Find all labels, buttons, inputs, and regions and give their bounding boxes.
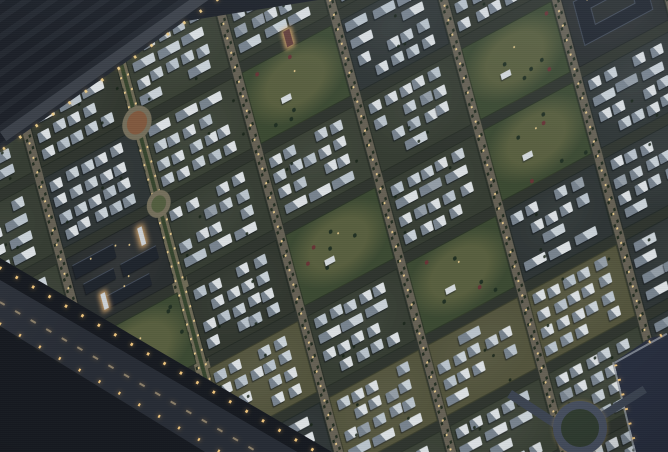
house	[329, 304, 343, 320]
park-tree	[529, 66, 534, 72]
house	[234, 374, 248, 390]
house	[391, 125, 405, 141]
park-pavilion	[522, 150, 533, 161]
house	[94, 152, 108, 168]
house	[83, 102, 97, 118]
house	[547, 283, 561, 299]
park-tree	[442, 298, 447, 304]
block-tree	[8, 176, 11, 180]
house	[211, 293, 225, 309]
house	[9, 230, 33, 250]
house	[231, 6, 245, 22]
house	[629, 165, 643, 181]
house	[357, 51, 371, 67]
house	[528, 442, 542, 452]
house	[544, 340, 558, 356]
house	[175, 103, 199, 123]
block-tree	[33, 404, 36, 408]
house	[569, 363, 583, 379]
block-tree	[394, 195, 397, 199]
park-tree	[522, 75, 527, 81]
house	[598, 107, 612, 123]
house	[324, 159, 338, 175]
house	[103, 184, 117, 200]
house	[3, 294, 17, 310]
house	[455, 423, 469, 439]
house	[171, 19, 185, 35]
house	[293, 176, 307, 192]
house	[175, 387, 189, 403]
house	[650, 43, 664, 59]
house	[133, 1, 147, 17]
aerial-city-render	[0, 0, 668, 452]
house	[53, 414, 67, 430]
house	[640, 436, 654, 452]
house	[373, 0, 397, 19]
house	[154, 138, 168, 154]
house	[357, 421, 371, 437]
house	[223, 400, 237, 416]
house	[160, 395, 174, 411]
house	[661, 351, 668, 367]
house	[69, 184, 83, 200]
house	[406, 43, 420, 59]
house	[268, 448, 282, 452]
house	[234, 22, 248, 38]
house	[204, 204, 218, 220]
house	[563, 274, 577, 290]
house	[620, 429, 634, 445]
house	[314, 313, 328, 329]
house	[70, 129, 84, 145]
house	[251, 13, 265, 29]
block-tree	[251, 279, 254, 283]
house	[544, 210, 558, 226]
house	[603, 67, 617, 83]
house	[236, 261, 250, 277]
house	[216, 180, 230, 196]
house	[454, 0, 468, 14]
house	[560, 331, 574, 347]
house	[605, 363, 619, 379]
park-tree	[516, 135, 521, 141]
house	[532, 289, 546, 305]
house	[548, 241, 572, 261]
block-tree	[483, 348, 486, 352]
block-tree	[66, 220, 69, 224]
park-pavilion	[126, 360, 137, 371]
house	[350, 387, 364, 403]
house	[456, 368, 470, 384]
house	[322, 346, 336, 362]
house	[402, 397, 416, 413]
house	[647, 173, 661, 189]
house	[157, 40, 181, 60]
park-pavilion	[280, 93, 291, 104]
minaret-tower	[137, 226, 146, 246]
house	[610, 155, 624, 171]
house	[116, 417, 130, 433]
house	[56, 80, 70, 96]
house	[542, 223, 566, 243]
park-tree-red	[255, 71, 260, 77]
house	[81, 29, 95, 45]
courtyard-light	[128, 275, 130, 278]
house	[615, 73, 639, 93]
house	[23, 300, 37, 316]
house	[617, 116, 631, 132]
house	[375, 60, 389, 76]
house	[0, 301, 3, 317]
house	[4, 213, 28, 233]
house	[65, 37, 79, 53]
house	[247, 292, 261, 308]
house	[121, 434, 135, 450]
house	[449, 204, 463, 220]
house	[373, 115, 387, 131]
house	[434, 156, 448, 172]
house	[17, 285, 31, 301]
house	[208, 277, 222, 293]
park-tree	[352, 233, 357, 239]
residential-grid-layer	[0, 0, 668, 452]
house	[193, 284, 207, 300]
block-tree	[656, 113, 659, 117]
house	[223, 140, 237, 156]
house	[427, 66, 441, 82]
house	[499, 325, 513, 341]
house	[368, 99, 382, 115]
house	[592, 388, 606, 404]
house	[50, 47, 64, 63]
house	[487, 407, 501, 423]
house	[472, 360, 486, 376]
house	[50, 375, 74, 395]
house	[559, 201, 573, 217]
house	[356, 347, 370, 363]
house	[359, 288, 373, 304]
house	[663, 252, 668, 272]
house	[236, 442, 260, 452]
house	[372, 427, 396, 447]
block-tree	[121, 0, 124, 2]
house	[288, 383, 302, 399]
house	[416, 445, 430, 452]
house	[176, 165, 190, 181]
house	[601, 290, 615, 306]
block-tree	[25, 390, 28, 394]
house	[634, 181, 648, 197]
house	[485, 334, 499, 350]
park-tree-red	[478, 284, 483, 290]
block-tree	[492, 354, 495, 358]
house	[373, 412, 387, 428]
house	[88, 193, 102, 209]
house	[284, 195, 308, 215]
house	[264, 6, 278, 22]
house	[188, 59, 212, 79]
house	[34, 276, 48, 292]
house	[256, 270, 270, 286]
house	[65, 224, 79, 240]
house	[51, 0, 65, 6]
block-tree	[611, 356, 614, 360]
block-tree	[27, 46, 30, 50]
block-tree	[263, 353, 266, 357]
house	[232, 302, 246, 318]
house	[389, 402, 403, 418]
house	[577, 267, 591, 283]
house	[278, 0, 292, 15]
block-tree	[355, 159, 358, 163]
house	[94, 207, 108, 223]
house	[181, 27, 205, 47]
house	[62, 446, 76, 452]
house	[372, 282, 386, 298]
house	[20, 61, 34, 77]
house	[57, 136, 71, 152]
house	[590, 370, 604, 386]
house	[150, 66, 164, 82]
house	[390, 180, 404, 196]
house	[420, 220, 434, 236]
park-path-light	[294, 70, 296, 73]
house	[78, 440, 92, 452]
house	[303, 152, 317, 168]
house	[575, 323, 589, 339]
house	[469, 415, 483, 431]
house	[179, 238, 193, 254]
house	[17, 416, 31, 432]
house	[0, 113, 4, 129]
house	[113, 161, 127, 177]
house	[77, 216, 91, 232]
house	[149, 434, 173, 452]
house	[350, 330, 364, 346]
house	[501, 398, 515, 414]
house	[446, 387, 470, 407]
house	[407, 171, 421, 187]
house	[443, 374, 457, 390]
block-tree	[393, 14, 396, 18]
house	[555, 371, 569, 387]
house	[263, 359, 277, 375]
house	[339, 0, 353, 2]
house	[402, 99, 416, 115]
house	[433, 214, 447, 230]
house	[137, 75, 151, 91]
house	[226, 0, 240, 6]
house	[109, 200, 123, 216]
house	[231, 172, 245, 188]
house	[99, 168, 113, 184]
park-tree	[292, 107, 297, 113]
house	[398, 212, 412, 228]
house	[510, 409, 534, 429]
house	[641, 264, 665, 284]
park-tree-red	[424, 259, 429, 265]
house	[632, 51, 646, 67]
house	[622, 373, 636, 389]
park-pavilion	[324, 255, 335, 266]
house	[318, 144, 332, 160]
house	[213, 367, 227, 383]
park-path-light	[139, 337, 141, 340]
house	[202, 317, 216, 333]
block-tree	[218, 324, 221, 328]
house	[81, 80, 105, 100]
house	[0, 317, 7, 333]
house	[634, 248, 658, 268]
house	[0, 130, 8, 150]
park-pavilion	[500, 69, 511, 80]
house	[119, 9, 133, 25]
house	[283, 144, 297, 160]
house	[84, 176, 98, 192]
house	[365, 379, 379, 395]
house	[348, 439, 372, 452]
block-tree	[198, 214, 201, 218]
house	[234, 221, 258, 241]
house	[386, 35, 400, 51]
house	[26, 373, 40, 389]
house	[278, 350, 292, 366]
house	[608, 380, 622, 396]
park-path-light	[513, 46, 515, 49]
park-tree	[273, 122, 278, 128]
house	[420, 165, 434, 181]
house	[53, 118, 67, 134]
house	[457, 16, 471, 32]
block-tree	[397, 44, 400, 48]
house	[386, 332, 400, 348]
house	[453, 350, 467, 366]
park-path-light	[458, 261, 460, 264]
park-tree-red	[529, 178, 534, 184]
house	[640, 141, 654, 157]
house	[367, 323, 381, 339]
house	[101, 111, 115, 127]
park-path-light	[535, 127, 537, 130]
block-tree	[231, 99, 234, 103]
block-tree	[285, 167, 288, 171]
house	[590, 444, 604, 452]
block-tree	[403, 321, 406, 325]
park-tree-red	[288, 54, 293, 60]
house	[46, 28, 60, 44]
house	[401, 1, 425, 21]
house	[36, 52, 50, 68]
house	[396, 361, 410, 377]
park-tree	[328, 229, 333, 235]
house	[459, 181, 473, 197]
house	[597, 347, 611, 363]
house	[148, 0, 162, 10]
house	[180, 50, 194, 66]
courtyard-light	[129, 243, 131, 246]
house	[236, 188, 250, 204]
house	[308, 182, 332, 202]
house	[143, 403, 157, 419]
park-path-light	[337, 232, 339, 235]
house	[484, 421, 508, 441]
house	[196, 43, 210, 59]
block-tree	[535, 213, 538, 217]
park-tree-red	[306, 261, 311, 267]
block-tree	[426, 130, 429, 134]
house	[646, 155, 660, 171]
house	[329, 119, 343, 135]
house	[217, 309, 231, 325]
house	[199, 91, 223, 111]
house	[24, 431, 38, 447]
house	[67, 111, 81, 127]
house	[0, 259, 11, 279]
block-tree	[478, 427, 481, 431]
house	[635, 420, 649, 436]
block-tree	[448, 166, 451, 170]
house	[467, 342, 481, 358]
house	[34, 406, 48, 422]
house	[413, 204, 427, 220]
house	[613, 397, 627, 413]
house	[566, 420, 580, 436]
house	[239, 390, 253, 406]
house	[278, 184, 292, 200]
house	[189, 138, 203, 154]
block-tree	[630, 98, 633, 102]
house	[238, 34, 262, 54]
house	[659, 149, 668, 165]
house	[598, 272, 612, 288]
house	[184, 247, 208, 267]
park-tree	[560, 158, 565, 164]
house	[274, 335, 288, 351]
park-tree-red	[311, 245, 316, 251]
house	[186, 196, 200, 212]
house	[339, 356, 353, 372]
house	[10, 340, 34, 360]
block-tree	[194, 77, 197, 81]
park-tree	[541, 112, 546, 118]
park-tree	[328, 245, 333, 251]
house	[271, 391, 285, 407]
house	[209, 233, 233, 253]
house	[302, 431, 316, 447]
house	[599, 403, 613, 419]
block-tree	[341, 354, 344, 358]
house	[368, 395, 382, 411]
house	[59, 22, 73, 38]
house	[228, 358, 242, 374]
house	[167, 132, 181, 148]
house	[398, 379, 412, 395]
house	[286, 416, 310, 436]
house	[0, 354, 8, 374]
house	[285, 440, 299, 452]
house	[267, 302, 281, 318]
house	[350, 29, 374, 49]
park-tree	[289, 117, 294, 123]
house	[204, 131, 218, 147]
house	[620, 354, 634, 370]
park-pavilion	[444, 284, 455, 295]
house	[37, 0, 51, 12]
house	[81, 159, 95, 175]
house	[177, 437, 201, 452]
house	[27, 20, 41, 36]
park-tree	[111, 351, 116, 357]
